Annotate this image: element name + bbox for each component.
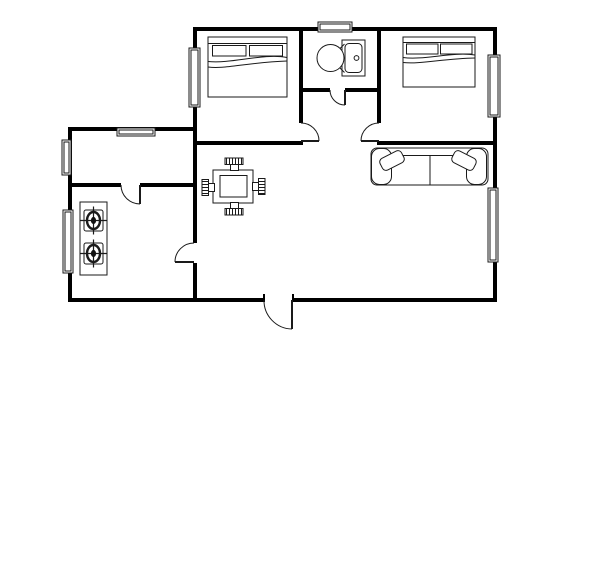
wall-bathroom-south-a — [299, 88, 330, 92]
entrance-jamb-left — [263, 294, 265, 299]
entrance-door — [264, 300, 292, 329]
bed-right — [403, 37, 475, 87]
wall-x193-lower — [193, 263, 197, 302]
toilet — [317, 40, 365, 76]
kitchen-door — [121, 185, 140, 204]
wall-bathroom-south-b — [345, 88, 381, 92]
floor-plan-canvas — [0, 0, 600, 584]
bedroom-left-door — [301, 123, 319, 141]
dining-table — [202, 158, 265, 215]
window-kitchen-west-lower — [63, 210, 73, 273]
wall-bathroom-west — [299, 27, 303, 123]
window-living-east — [488, 188, 498, 262]
floor-plan-page — [0, 0, 600, 584]
sofa — [371, 148, 488, 185]
window-bedroom-right-east — [488, 55, 500, 117]
wall-bedroom-left-south — [193, 141, 303, 145]
window-bedroom-left-west — [189, 48, 200, 107]
stove — [80, 202, 107, 275]
wall-kitchen-hall-b — [140, 183, 196, 187]
wall-bottom-right — [292, 298, 497, 302]
wall-bedroom-right-south — [377, 141, 497, 145]
window-kitchen-west-upper — [62, 140, 71, 175]
bed-left — [208, 37, 287, 97]
kitchen-living-door — [175, 243, 194, 262]
window-kitchen-north — [117, 128, 155, 136]
wall-kitchen-hall-a — [68, 183, 121, 187]
bathroom-door — [330, 90, 345, 105]
window-bathroom-north — [318, 22, 352, 32]
bedroom-right-door — [361, 123, 379, 141]
entrance-jamb-right — [292, 294, 294, 299]
wall-bedroom-right-west — [377, 27, 381, 123]
wall-bottom-left — [68, 298, 265, 302]
